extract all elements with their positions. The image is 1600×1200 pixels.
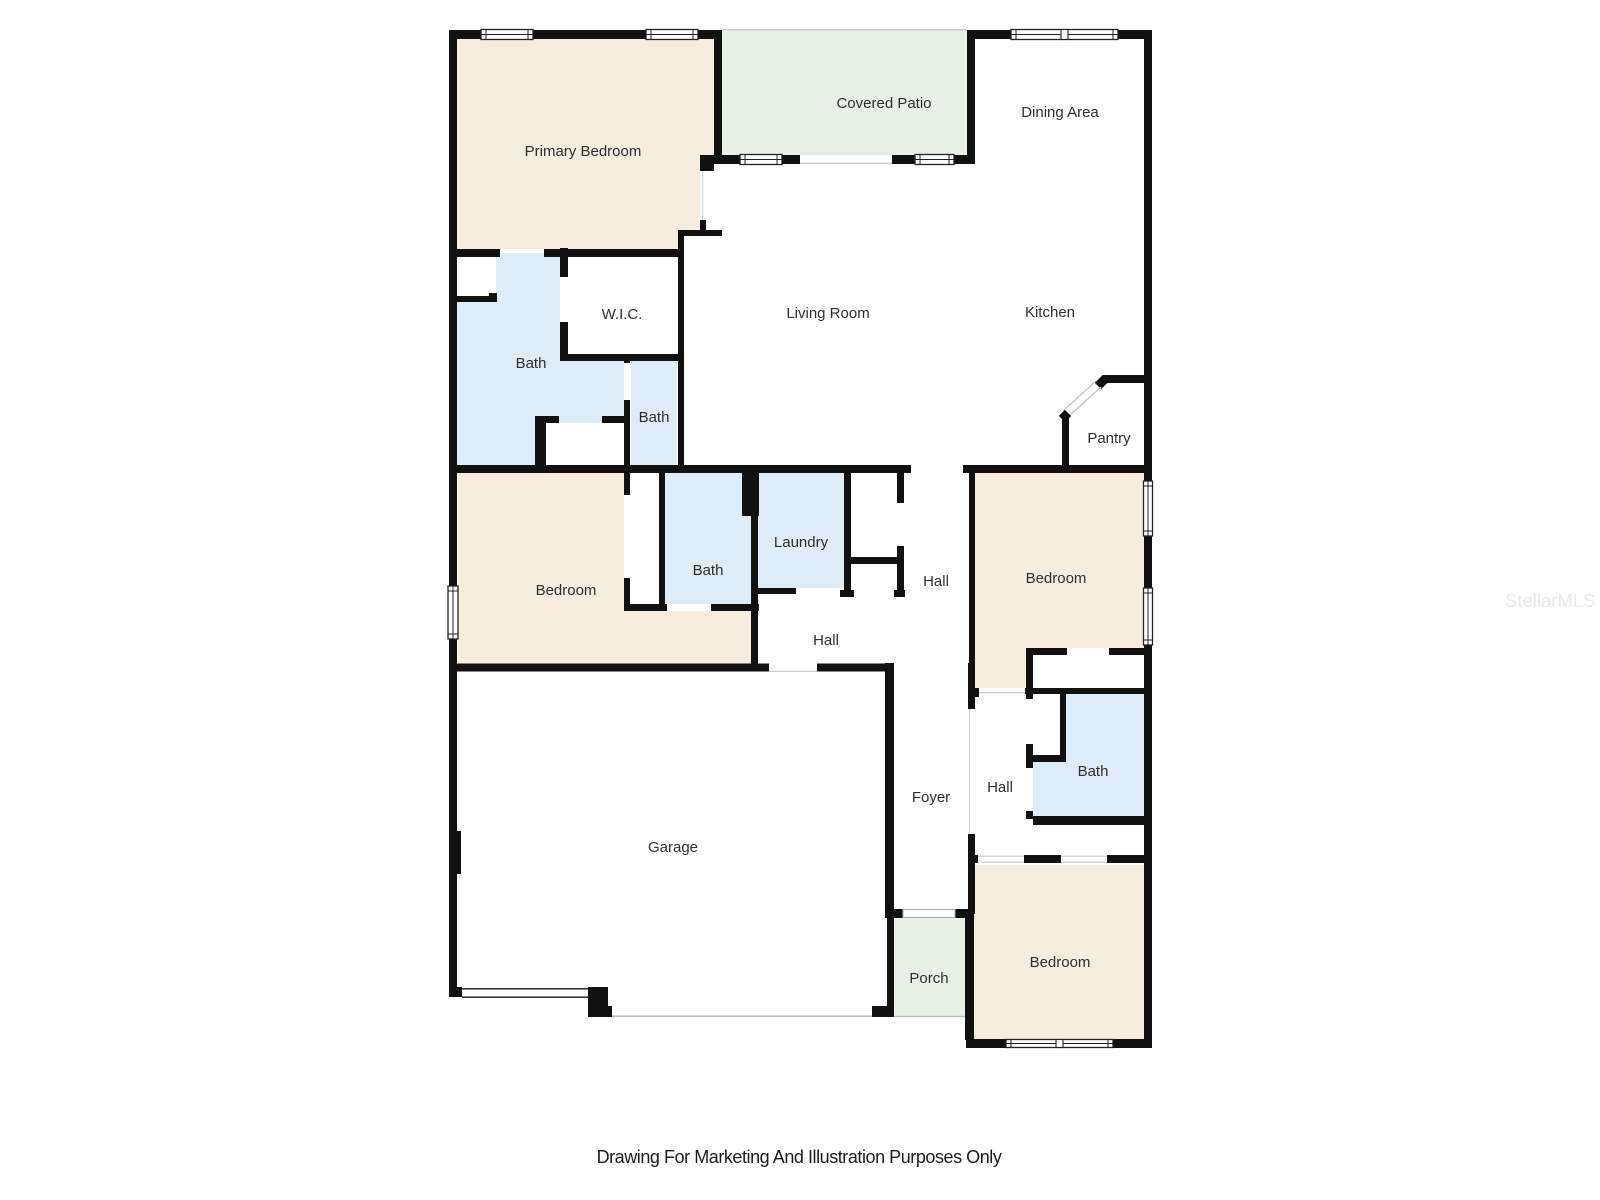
svg-text:Bedroom: Bedroom (536, 582, 597, 599)
svg-text:Bedroom: Bedroom (1030, 954, 1091, 971)
svg-text:Garage: Garage (648, 839, 698, 856)
svg-text:W.I.C.: W.I.C. (602, 306, 643, 323)
svg-text:Bedroom: Bedroom (1026, 570, 1087, 587)
svg-text:Porch: Porch (909, 970, 948, 987)
svg-text:Bath: Bath (693, 562, 724, 579)
svg-text:Kitchen: Kitchen (1025, 304, 1075, 321)
svg-text:Drawing For Marketing And Illu: Drawing For Marketing And Illustration P… (597, 1147, 1002, 1167)
svg-text:Bath: Bath (639, 409, 670, 426)
svg-text:Hall: Hall (813, 632, 839, 649)
svg-text:Bath: Bath (516, 355, 547, 372)
svg-text:Living Room: Living Room (786, 305, 869, 322)
svg-text:Covered Patio: Covered Patio (836, 95, 931, 112)
svg-text:Hall: Hall (987, 779, 1013, 796)
svg-text:Dining Area: Dining Area (1021, 104, 1099, 121)
svg-text:Primary Bedroom: Primary Bedroom (525, 143, 642, 160)
svg-text:Hall: Hall (923, 573, 949, 590)
svg-text:Pantry: Pantry (1087, 430, 1131, 447)
svg-text:Foyer: Foyer (912, 789, 950, 806)
svg-text:StellarMLS: StellarMLS (1505, 590, 1595, 611)
svg-text:Bath: Bath (1078, 763, 1109, 780)
svg-text:Laundry: Laundry (774, 534, 829, 551)
